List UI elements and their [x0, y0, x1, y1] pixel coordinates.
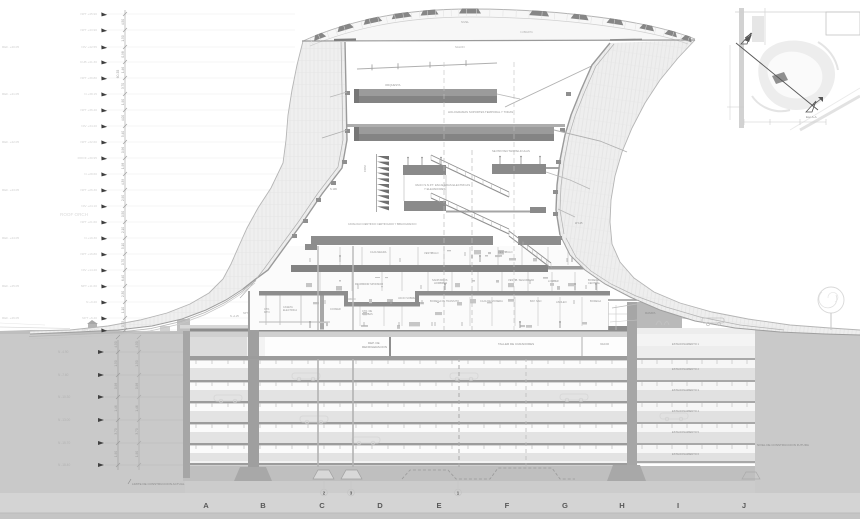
- svg-text:NPT +32.60: NPT +32.60: [80, 140, 97, 144]
- svg-text:0.98: 0.98: [114, 383, 118, 389]
- svg-text:NPT +3.10: NPT +3.10: [82, 328, 97, 332]
- svg-text:CUB +41.30: CUB +41.30: [80, 60, 97, 64]
- svg-text:N -15.70: N -15.70: [58, 441, 70, 445]
- svg-text:W 125: W 125: [575, 221, 583, 225]
- svg-text:Esc A-A: Esc A-A: [806, 115, 817, 119]
- svg-text:6.40: 6.40: [121, 275, 125, 281]
- svg-text:5.40: 5.40: [121, 131, 125, 137]
- svg-text:VESTIBULO: VESTIBULO: [424, 251, 439, 255]
- svg-text:1.46: 1.46: [121, 67, 125, 73]
- svg-text:60.35: 60.35: [116, 70, 120, 79]
- svg-text:C: C: [319, 501, 325, 510]
- svg-text:VESTIBULO: VESTIBULO: [498, 250, 513, 254]
- svg-text:NIV +42.55: NIV +42.55: [81, 45, 97, 49]
- svg-text:4.50: 4.50: [114, 341, 118, 347]
- svg-text:CONSER: CONSER: [330, 308, 341, 311]
- svg-text:D: D: [377, 501, 383, 510]
- svg-text:N +38.15: N +38.15: [84, 92, 97, 96]
- svg-text:2.90: 2.90: [121, 195, 125, 201]
- svg-text:F: F: [505, 501, 510, 510]
- svg-text:N +19.30: N +19.30: [84, 236, 97, 240]
- svg-text:ROOF +30.95: ROOF +30.95: [78, 156, 98, 160]
- svg-text:E: E: [436, 501, 441, 510]
- svg-text:N -10.30: N -10.30: [58, 395, 70, 399]
- svg-text:N +1.25: N +1.25: [230, 315, 239, 318]
- svg-text:ORQUESTA: ORQUESTA: [385, 83, 401, 87]
- svg-text:NPT +6.40: NPT +6.40: [82, 316, 97, 320]
- svg-text:REFRIGERACION: REFRIGERACION: [362, 345, 387, 349]
- svg-text:LIMITE DE CONSTRUCCION ACTUAL: LIMITE DE CONSTRUCCION ACTUAL: [132, 482, 185, 486]
- svg-text:4.39: 4.39: [121, 179, 125, 185]
- svg-text:4.00: 4.00: [121, 115, 125, 121]
- svg-text:TALLER DE CURADORES: TALLER DE CURADORES: [498, 342, 534, 346]
- svg-text:3.70: 3.70: [135, 428, 139, 434]
- svg-text:VACIO: VACIO: [348, 298, 356, 301]
- svg-text:3.70: 3.70: [114, 428, 118, 434]
- svg-text:0.96: 0.96: [121, 147, 125, 153]
- svg-text:J: J: [742, 501, 746, 510]
- svg-text:REF. +40.05: REF. +40.05: [2, 45, 19, 49]
- svg-text:BAT. SAN: BAT. SAN: [530, 299, 541, 303]
- svg-text:4.50: 4.50: [121, 19, 125, 25]
- svg-text:NPT +43.90: NPT +43.90: [80, 28, 97, 32]
- svg-text:4.50: 4.50: [135, 341, 139, 347]
- svg-text:1.90: 1.90: [135, 451, 139, 457]
- svg-text:NIVEL DE CONSTRUCCION FUTURA: NIVEL DE CONSTRUCCION FUTURA: [757, 443, 809, 447]
- svg-text:N -7.60: N -7.60: [58, 373, 69, 377]
- svg-text:ROOF ORCH: ROOF ORCH: [60, 212, 88, 217]
- svg-text:ESTACIONAMIENTO 6: ESTACIONAMIENTO 6: [672, 452, 700, 456]
- svg-text:BODEGA: BODEGA: [590, 299, 601, 303]
- svg-text:ESTACIONAMIENTO 3: ESTACIONAMIENTO 3: [672, 388, 700, 392]
- svg-text:VACIO: VACIO: [600, 342, 610, 346]
- svg-text:0.50: 0.50: [121, 211, 125, 217]
- svg-text:ESTACIONAMIENTO 2: ESTACIONAMIENTO 2: [672, 367, 700, 371]
- svg-text:RAMPA: RAMPA: [645, 311, 655, 315]
- svg-text:2.30: 2.30: [121, 291, 125, 297]
- svg-text:REF. +42.05: REF. +42.05: [2, 140, 19, 144]
- svg-text:RECIBIDOR SPONSOR: RECIBIDOR SPONSOR: [355, 282, 383, 286]
- svg-text:I: I: [677, 501, 679, 510]
- svg-text:NIV +24.10: NIV +24.10: [81, 204, 97, 208]
- svg-text:1.90: 1.90: [121, 99, 125, 105]
- svg-text:N -18.40: N -18.40: [58, 463, 70, 467]
- svg-text:NIVEL: NIVEL: [461, 20, 470, 24]
- svg-text:1.46: 1.46: [114, 405, 118, 411]
- svg-text:NPT +11.60: NPT +11.60: [81, 284, 98, 288]
- svg-text:1.46: 1.46: [135, 405, 139, 411]
- svg-text:CUBIERTA: CUBIERTA: [520, 30, 533, 34]
- svg-text:BODEGA DE TRANSITO: BODEGA DE TRANSITO: [430, 299, 459, 303]
- svg-text:0.75: 0.75: [121, 321, 125, 327]
- svg-text:N -13.00: N -13.00: [58, 418, 70, 422]
- svg-text:1.10: 1.10: [121, 307, 125, 313]
- svg-text:3.70: 3.70: [121, 83, 125, 89]
- svg-text:S 106: S 106: [330, 187, 337, 191]
- svg-text:CATALOGO CIENTIFICO CERTIFICAD: CATALOGO CIENTIFICO CERTIFICADO Y BIBLIO…: [348, 223, 416, 226]
- svg-text:ELECTRICA: ELECTRICA: [283, 309, 297, 312]
- svg-text:G: G: [562, 501, 568, 510]
- svg-text:1.50: 1.50: [121, 35, 125, 41]
- svg-text:NPT +39.80: NPT +39.80: [80, 76, 97, 80]
- svg-text:H: H: [619, 501, 624, 510]
- svg-text:REF. +43.05: REF. +43.05: [2, 188, 19, 192]
- svg-text:B: B: [260, 501, 266, 510]
- svg-text:NPT +16.80: NPT +16.80: [80, 252, 97, 256]
- svg-text:0.70: 0.70: [121, 259, 125, 265]
- svg-text:N +9.20: N +9.20: [86, 300, 97, 304]
- svg-text:NPT +21.60: NPT +21.60: [80, 220, 97, 224]
- svg-text:1.50: 1.50: [114, 360, 118, 366]
- svg-text:NPT +45.90: NPT +45.90: [80, 12, 97, 16]
- svg-text:REF. +41.05: REF. +41.05: [2, 92, 19, 96]
- svg-text:ESTACIONAMIENTO 4: ESTACIONAMIENTO 4: [672, 409, 700, 413]
- svg-text:1.98: 1.98: [121, 163, 125, 169]
- svg-text:Y ELEVADORES: Y ELEVADORES: [424, 187, 445, 191]
- svg-text:SE PROYECTAN PELICULAS: SE PROYECTAN PELICULAS: [492, 149, 530, 153]
- svg-text:N +28.60: N +28.60: [84, 172, 97, 176]
- svg-text:NPT +26.30: NPT +26.30: [80, 188, 97, 192]
- svg-text:NIV +14.20: NIV +14.20: [81, 268, 97, 272]
- svg-text:A: A: [203, 501, 209, 510]
- svg-text:2.10: 2.10: [121, 227, 125, 233]
- svg-text:HOLOGRAMAS SOPORTES TEMPORAL Y: HOLOGRAMAS SOPORTES TEMPORAL Y TODAS: [448, 110, 513, 114]
- svg-text:ASOLEO: ASOLEO: [556, 300, 567, 304]
- svg-text:ESTACIONAMIENTO 5: ESTACIONAMIENTO 5: [672, 430, 700, 434]
- svg-text:REF. +44.05: REF. +44.05: [2, 236, 19, 240]
- svg-text:VACIO SOBRE: VACIO SOBRE: [398, 297, 415, 300]
- svg-text:1.90: 1.90: [114, 451, 118, 457]
- svg-text:1.50: 1.50: [135, 360, 139, 366]
- svg-text:NPT: NPT: [243, 312, 248, 315]
- svg-text:NPT +36.40: NPT +36.40: [80, 108, 97, 112]
- svg-text:COM: COM: [363, 165, 367, 172]
- svg-text:SALON: SALON: [455, 45, 464, 49]
- svg-text:MTN.: MTN.: [264, 311, 270, 314]
- svg-text:0.98: 0.98: [135, 383, 139, 389]
- svg-text:5.10: 5.10: [121, 243, 125, 249]
- svg-text:ESTACIONAMIENTO 1: ESTACIONAMIENTO 1: [672, 342, 700, 346]
- svg-text:N -4.90: N -4.90: [58, 350, 69, 354]
- svg-text:CAJA NEGRA: CAJA NEGRA: [370, 250, 387, 254]
- svg-text:NIV +34.20: NIV +34.20: [81, 124, 97, 128]
- svg-text:CENTRAL: CENTRAL: [588, 281, 601, 285]
- svg-text:0.98: 0.98: [121, 51, 125, 57]
- svg-text:REF. +46.05: REF. +46.05: [2, 316, 19, 320]
- svg-text:REF. +45.05: REF. +45.05: [2, 284, 19, 288]
